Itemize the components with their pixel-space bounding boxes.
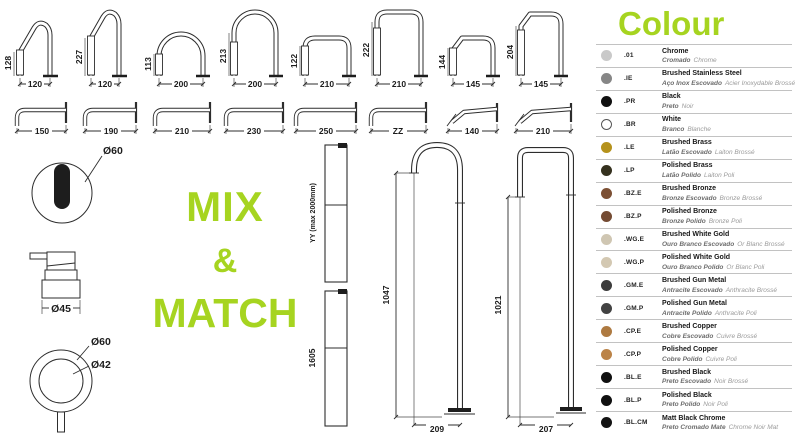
dim-diameter-label: Ø45 — [51, 303, 71, 315]
colour-code: .IE — [624, 75, 662, 82]
dim-length-label: 210 — [536, 126, 550, 136]
colour-row: .IE Brushed Stainless Steel Aço Inox Esc… — [596, 67, 792, 90]
colour-code: .LP — [624, 167, 662, 174]
mix-and-match-headline: MIX & MATCH — [136, 186, 314, 334]
colour-row: .GM.E Brushed Gun Metal Antracite Escova… — [596, 273, 792, 296]
colour-row: .BL.P Polished Black Preto PolidoNoir Po… — [596, 388, 792, 411]
colour-names: White BrancoBlanche — [662, 115, 711, 134]
colour-name: Polished Brass — [662, 161, 734, 171]
colour-row: .CP.P Polished Copper Cobre PolidoCuivre… — [596, 342, 792, 365]
colour-row: .BL.E Brushed Black Preto EscovadoNoir B… — [596, 365, 792, 388]
colour-subname: Antracite PolidoAnthracite Poli — [662, 309, 757, 318]
dim-length-label: 250 — [319, 126, 333, 136]
colour-swatch-icon — [601, 417, 612, 428]
colour-name: Black — [662, 92, 694, 102]
colour-legend-rows: .01 Chrome CromadoChrome .IE Brushed Sta… — [596, 44, 792, 434]
wall-spout-angled-210-drawing: 210 — [506, 98, 578, 140]
colour-swatch-icon — [601, 234, 612, 245]
colour-subname: Ouro Branco EscovadoOr Blanc Brossé — [662, 240, 785, 249]
colour-code: .BZ.P — [624, 213, 662, 220]
colour-row: .BR White BrancoBlanche — [596, 113, 792, 136]
colour-name: Polished Gun Metal — [662, 299, 757, 309]
colour-name: Brushed Black — [662, 368, 748, 378]
dim-length-label: 150 — [35, 126, 49, 136]
colour-swatch-icon — [601, 211, 612, 222]
colour-subname: Ouro Branco PolidoOr Blanc Poli — [662, 263, 764, 272]
colour-subname: CromadoChrome — [662, 56, 717, 65]
spout-bevel-short-drawing: 145 144 — [438, 2, 508, 94]
colour-name: Matt Black Chrome — [662, 414, 778, 424]
colour-row: .LP Polished Brass Latão PolidoLaiton Po… — [596, 159, 792, 182]
spout-square-low-drawing: 210 122 — [292, 2, 362, 94]
colour-code: .BL.CM — [624, 419, 662, 426]
headline-line-2: MATCH — [136, 293, 314, 334]
colour-name: Brushed Brass — [662, 138, 755, 148]
handle-knob-drawing: Ø60 Ø42 — [5, 330, 130, 434]
colour-subname: Bronze EscovadoBronze Brossé — [662, 194, 762, 203]
colour-names: Brushed Black Preto EscovadoNoir Brossé — [662, 368, 748, 387]
colour-swatch-icon — [601, 257, 612, 268]
colour-code: .WG.P — [624, 259, 662, 266]
wall-spout-210-drawing: 210 — [146, 98, 218, 140]
colour-subname: Aço Inox EscovadoAcier Inoxydable Brossé — [662, 79, 795, 88]
spout-arch-low-drawing: 200 113 — [146, 2, 216, 94]
dim-height-label: 122 — [289, 54, 299, 68]
colour-swatch-icon — [601, 303, 612, 314]
colour-name: Polished Copper — [662, 345, 737, 355]
dim-height-label: 227 — [74, 50, 84, 64]
dim-width-label: 200 — [174, 79, 188, 89]
colour-code: .CP.P — [624, 351, 662, 358]
dim-height-label: 222 — [361, 43, 371, 57]
colour-swatch-icon — [601, 349, 612, 360]
colour-code: .GM.P — [624, 305, 662, 312]
wall-spout-190-drawing: 190 — [74, 98, 146, 140]
colour-swatch-icon — [601, 96, 612, 107]
dim-width-label: 210 — [320, 79, 334, 89]
wall-spout-250-drawing: 250 — [290, 98, 362, 140]
colour-code: .WG.E — [624, 236, 662, 243]
riser-column-fixed-drawing: 1605 — [298, 288, 356, 434]
colour-subname: Latão PolidoLaiton Poli — [662, 171, 734, 180]
spout-arch-tall-drawing: 200 213 — [220, 2, 290, 94]
colour-row: .GM.P Polished Gun Metal Antracite Polid… — [596, 296, 792, 319]
colour-names: Polished Bronze Bronze PolidoBronze Poli — [662, 207, 742, 226]
colour-names: Polished Gun Metal Antracite PolidoAnthr… — [662, 299, 757, 318]
colour-subname: Preto PolidoNoir Poli — [662, 400, 728, 409]
colour-row: .WG.E Brushed White Gold Ouro Branco Esc… — [596, 228, 792, 251]
colour-name: Brushed Gun Metal — [662, 276, 777, 286]
floor-spout-round-drawing: 209 1047 — [380, 140, 472, 434]
wall-spout-angled-140-drawing: 140 — [434, 98, 506, 140]
dim-reach-label: 207 — [539, 424, 553, 434]
colour-code: .01 — [624, 52, 662, 59]
colour-name: Polished Black — [662, 391, 728, 401]
colour-names: Chrome CromadoChrome — [662, 47, 717, 66]
dim-width-label: 210 — [392, 79, 406, 89]
dim-width-label: 145 — [466, 79, 480, 89]
dim-height-label: 144 — [437, 55, 447, 69]
colour-row: .WG.P Polished White Gold Ouro Branco Po… — [596, 250, 792, 273]
dim-length-label: ZZ — [393, 126, 403, 136]
wall-spout-zz-drawing: ZZ — [362, 98, 434, 140]
colour-code: .BL.E — [624, 374, 662, 381]
colour-code: .BZ.E — [624, 190, 662, 197]
colour-subname: Cobre PolidoCuivre Poli — [662, 355, 737, 364]
dim-width-label: 145 — [534, 79, 548, 89]
colour-names: Brushed Gun Metal Antracite EscovadoAnth… — [662, 276, 777, 295]
wall-spout-230-drawing: 230 — [218, 98, 290, 140]
dim-height-label: 128 — [3, 56, 13, 70]
colour-names: Black PretoNoir — [662, 92, 694, 111]
colour-names: Brushed White Gold Ouro Branco EscovadoO… — [662, 230, 785, 249]
colour-names: Brushed Stainless Steel Aço Inox Escovad… — [662, 69, 795, 88]
colour-name: Brushed Stainless Steel — [662, 69, 795, 79]
colour-code: .BL.P — [624, 397, 662, 404]
dim-height-label: 1021 — [493, 295, 503, 314]
colour-names: Polished Black Preto PolidoNoir Poli — [662, 391, 728, 410]
colour-swatch-icon — [601, 372, 612, 383]
colour-row: .PR Black PretoNoir — [596, 90, 792, 113]
headline-line-1: MIX — [136, 186, 314, 228]
colour-subname: Preto Cromado MateChrome Noir Mat — [662, 423, 778, 432]
soap-dispenser-drawing: Ø45 — [25, 248, 125, 320]
dim-adjustable-height-label: YY (max 2000mm) — [310, 183, 317, 243]
dim-length-label: 210 — [175, 126, 189, 136]
colour-names: Matt Black Chrome Preto Cromado MateChro… — [662, 414, 778, 433]
dim-length-label: 140 — [465, 126, 479, 136]
colour-subname: Bronze PolidoBronze Poli — [662, 217, 742, 226]
colour-subname: Latão EscovadoLaiton Brossé — [662, 148, 755, 157]
colour-names: Brushed Copper Cobre EscovadoCuivre Bros… — [662, 322, 757, 341]
colour-code: .BR — [624, 121, 662, 128]
dim-width-label: 120 — [28, 79, 42, 89]
colour-name: Brushed White Gold — [662, 230, 785, 240]
colour-names: Polished White Gold Ouro Branco PolidoOr… — [662, 253, 764, 272]
colour-subname: PretoNoir — [662, 102, 694, 111]
dim-length-label: 230 — [247, 126, 261, 136]
colour-name: Polished Bronze — [662, 207, 742, 217]
dim-inner-diameter-label: Ø42 — [91, 359, 111, 371]
spout-square-tall-drawing: 210 222 — [364, 2, 434, 94]
colour-swatch-icon — [601, 73, 612, 84]
dim-length-label: 190 — [104, 126, 118, 136]
dim-width-label: 200 — [248, 79, 262, 89]
colour-name: Brushed Bronze — [662, 184, 762, 194]
colour-name: White — [662, 115, 711, 125]
spout-gooseneck-short-drawing: 120 128 — [4, 2, 74, 94]
colour-swatch-icon — [601, 50, 612, 61]
colour-subname: Antracite EscovadoAnthracite Brossé — [662, 286, 777, 295]
dim-height-label: 204 — [505, 45, 515, 59]
floor-spout-square-drawing: 207 1021 — [492, 140, 588, 434]
colour-legend: Colour .01 Chrome CromadoChrome .IE Brus… — [594, 0, 800, 434]
colour-names: Brushed Bronze Bronze EscovadoBronze Bro… — [662, 184, 762, 203]
colour-swatch-icon — [601, 188, 612, 199]
colour-name: Brushed Copper — [662, 322, 757, 332]
riser-column-adjustable-drawing: YY (max 2000mm) — [298, 141, 356, 285]
colour-swatch-icon — [601, 326, 612, 337]
catalog-page: 120 128 120 227 200 113 — [0, 0, 800, 434]
colour-subname: Cobre EscovadoCuivre Brossé — [662, 332, 757, 341]
wall-spout-150-drawing: 150 — [4, 98, 76, 140]
dim-diameter-label: Ø60 — [103, 145, 123, 157]
spout-gooseneck-tall-drawing: 120 227 — [76, 2, 146, 94]
colour-row: .LE Brushed Brass Latão EscovadoLaiton B… — [596, 136, 792, 159]
headline-ampersand: & — [136, 244, 314, 278]
colour-row: .CP.E Brushed Copper Cobre EscovadoCuivr… — [596, 319, 792, 342]
dim-width-label: 120 — [98, 79, 112, 89]
colour-names: Brushed Brass Latão EscovadoLaiton Bross… — [662, 138, 755, 157]
colour-swatch-icon — [601, 142, 612, 153]
colour-swatch-icon — [601, 119, 612, 130]
dim-height-label: 213 — [218, 49, 228, 63]
colour-row: .BL.CM Matt Black Chrome Preto Cromado M… — [596, 411, 792, 434]
colour-subname: BrancoBlanche — [662, 125, 711, 134]
colour-row: .01 Chrome CromadoChrome — [596, 44, 792, 67]
colour-swatch-icon — [601, 280, 612, 291]
sensor-plate-drawing: Ø60 — [8, 140, 128, 255]
colour-row: .BZ.E Brushed Bronze Bronze EscovadoBron… — [596, 182, 792, 205]
dim-height-label: 113 — [143, 57, 153, 71]
colour-swatch-icon — [601, 395, 612, 406]
colour-code: .PR — [624, 98, 662, 105]
colour-row: .BZ.P Polished Bronze Bronze PolidoBronz… — [596, 205, 792, 228]
colour-name: Polished White Gold — [662, 253, 764, 263]
colour-swatch-icon — [601, 165, 612, 176]
spout-bevel-tall-drawing: 145 204 — [506, 2, 576, 94]
colour-subname: Preto EscovadoNoir Brossé — [662, 377, 748, 386]
colour-code: .LE — [624, 144, 662, 151]
colour-names: Polished Brass Latão PolidoLaiton Poli — [662, 161, 734, 180]
dim-outer-diameter-label: Ø60 — [91, 336, 111, 348]
dim-height-label: 1047 — [381, 285, 391, 304]
colour-legend-title: Colour — [618, 5, 800, 43]
dim-reach-label: 209 — [430, 424, 444, 434]
colour-names: Polished Copper Cobre PolidoCuivre Poli — [662, 345, 737, 364]
colour-code: .CP.E — [624, 328, 662, 335]
colour-code: .GM.E — [624, 282, 662, 289]
colour-name: Chrome — [662, 47, 717, 57]
dim-fixed-height-label: 1605 — [307, 348, 317, 367]
